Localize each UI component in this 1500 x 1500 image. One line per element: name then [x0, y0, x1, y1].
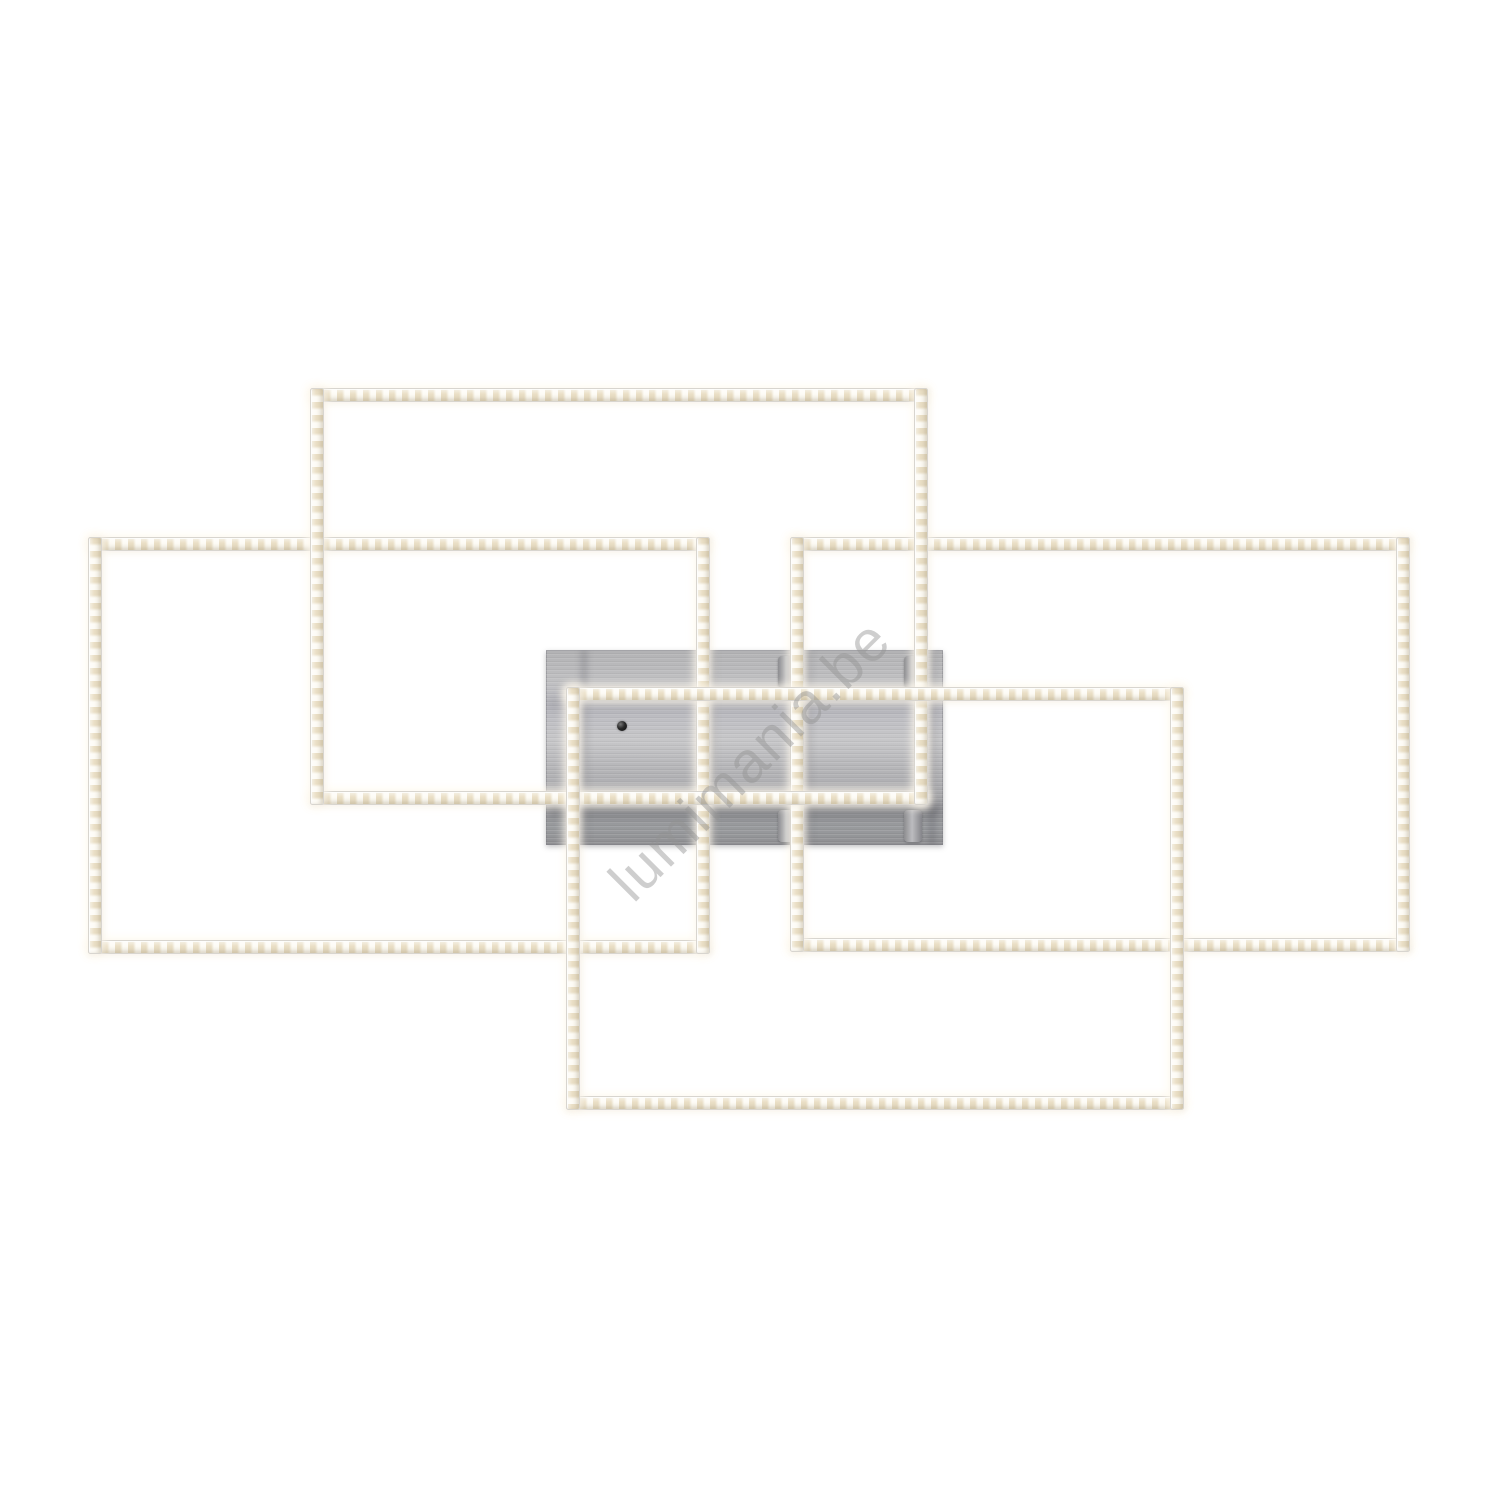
led-bar-left — [310, 388, 324, 805]
led-bar-right — [1396, 537, 1410, 952]
led-bar-top — [566, 687, 1184, 701]
product-photo: lumimania.be — [0, 0, 1500, 1500]
led-bar-bottom — [566, 1096, 1184, 1110]
led-bar-left — [88, 537, 102, 954]
led-bar-top — [310, 388, 928, 402]
led-bar-right — [1170, 687, 1184, 1110]
led-bar-left — [566, 687, 580, 1110]
